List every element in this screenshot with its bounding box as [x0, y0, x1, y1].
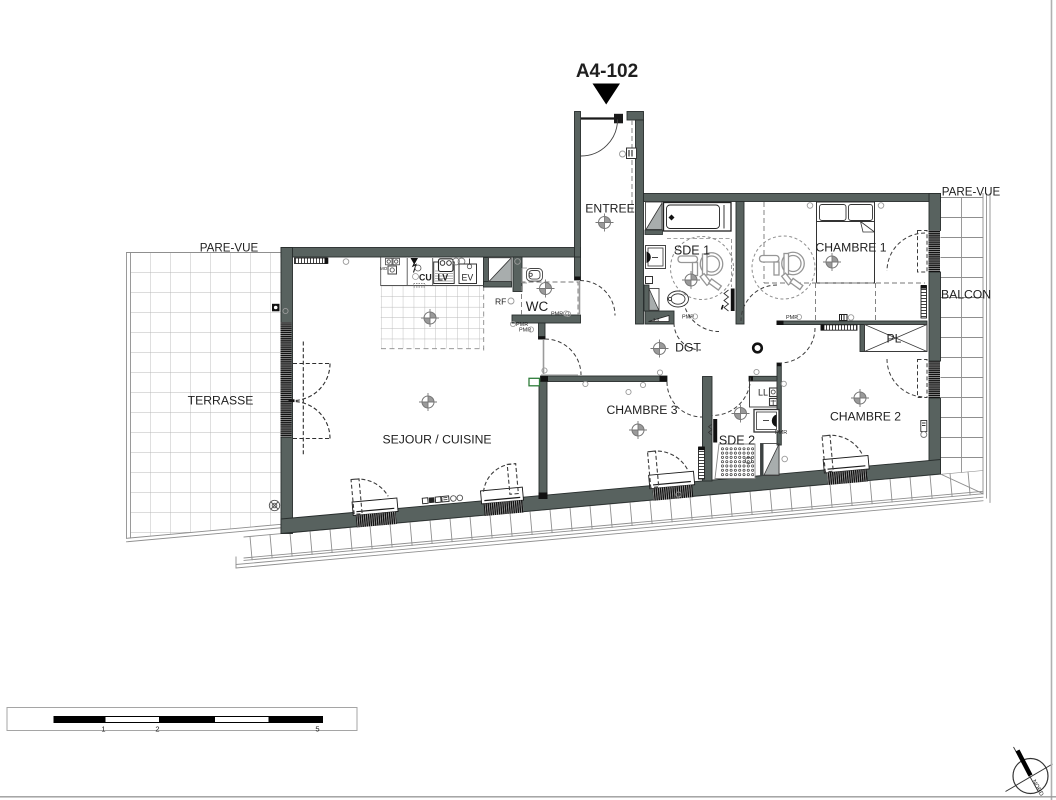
svg-text:PMR: PMR [551, 312, 563, 318]
svg-text:1: 1 [101, 725, 105, 734]
svg-text:5: 5 [315, 725, 319, 734]
svg-text:CHAMBRE 1: CHAMBRE 1 [815, 241, 886, 255]
svg-text:LV: LV [438, 273, 449, 283]
svg-text:SDE 2: SDE 2 [719, 434, 755, 448]
svg-text:MO: MO [380, 266, 388, 271]
svg-text:LL: LL [758, 388, 768, 398]
svg-text:PL: PL [887, 332, 902, 346]
svg-text:RF: RF [495, 297, 506, 307]
svg-text:CHAMBRE 2: CHAMBRE 2 [830, 410, 901, 424]
svg-text:1.4: 1.4 [653, 317, 660, 322]
svg-text:A4-102: A4-102 [576, 61, 638, 82]
svg-text:CHAMBRE 3: CHAMBRE 3 [606, 403, 677, 417]
svg-text:PARE-VUE: PARE-VUE [200, 242, 259, 255]
svg-text:PMR: PMR [775, 430, 787, 436]
svg-text:SDE 1: SDE 1 [674, 244, 710, 258]
svg-text:ENTREE: ENTREE [585, 202, 634, 216]
svg-text:DGT: DGT [675, 341, 701, 355]
svg-text:WC: WC [526, 299, 549, 314]
svg-text:PARE-VUE: PARE-VUE [942, 186, 1001, 199]
svg-text:BALCON: BALCON [941, 288, 991, 302]
svg-text:2: 2 [155, 725, 159, 734]
svg-text:PMR: PMR [519, 328, 531, 334]
svg-text:SEJOUR / CUISINE: SEJOUR / CUISINE [382, 433, 491, 447]
svg-text:CU: CU [419, 273, 432, 283]
svg-text:EV: EV [462, 273, 474, 283]
svg-text:TERRASSE: TERRASSE [188, 394, 254, 408]
